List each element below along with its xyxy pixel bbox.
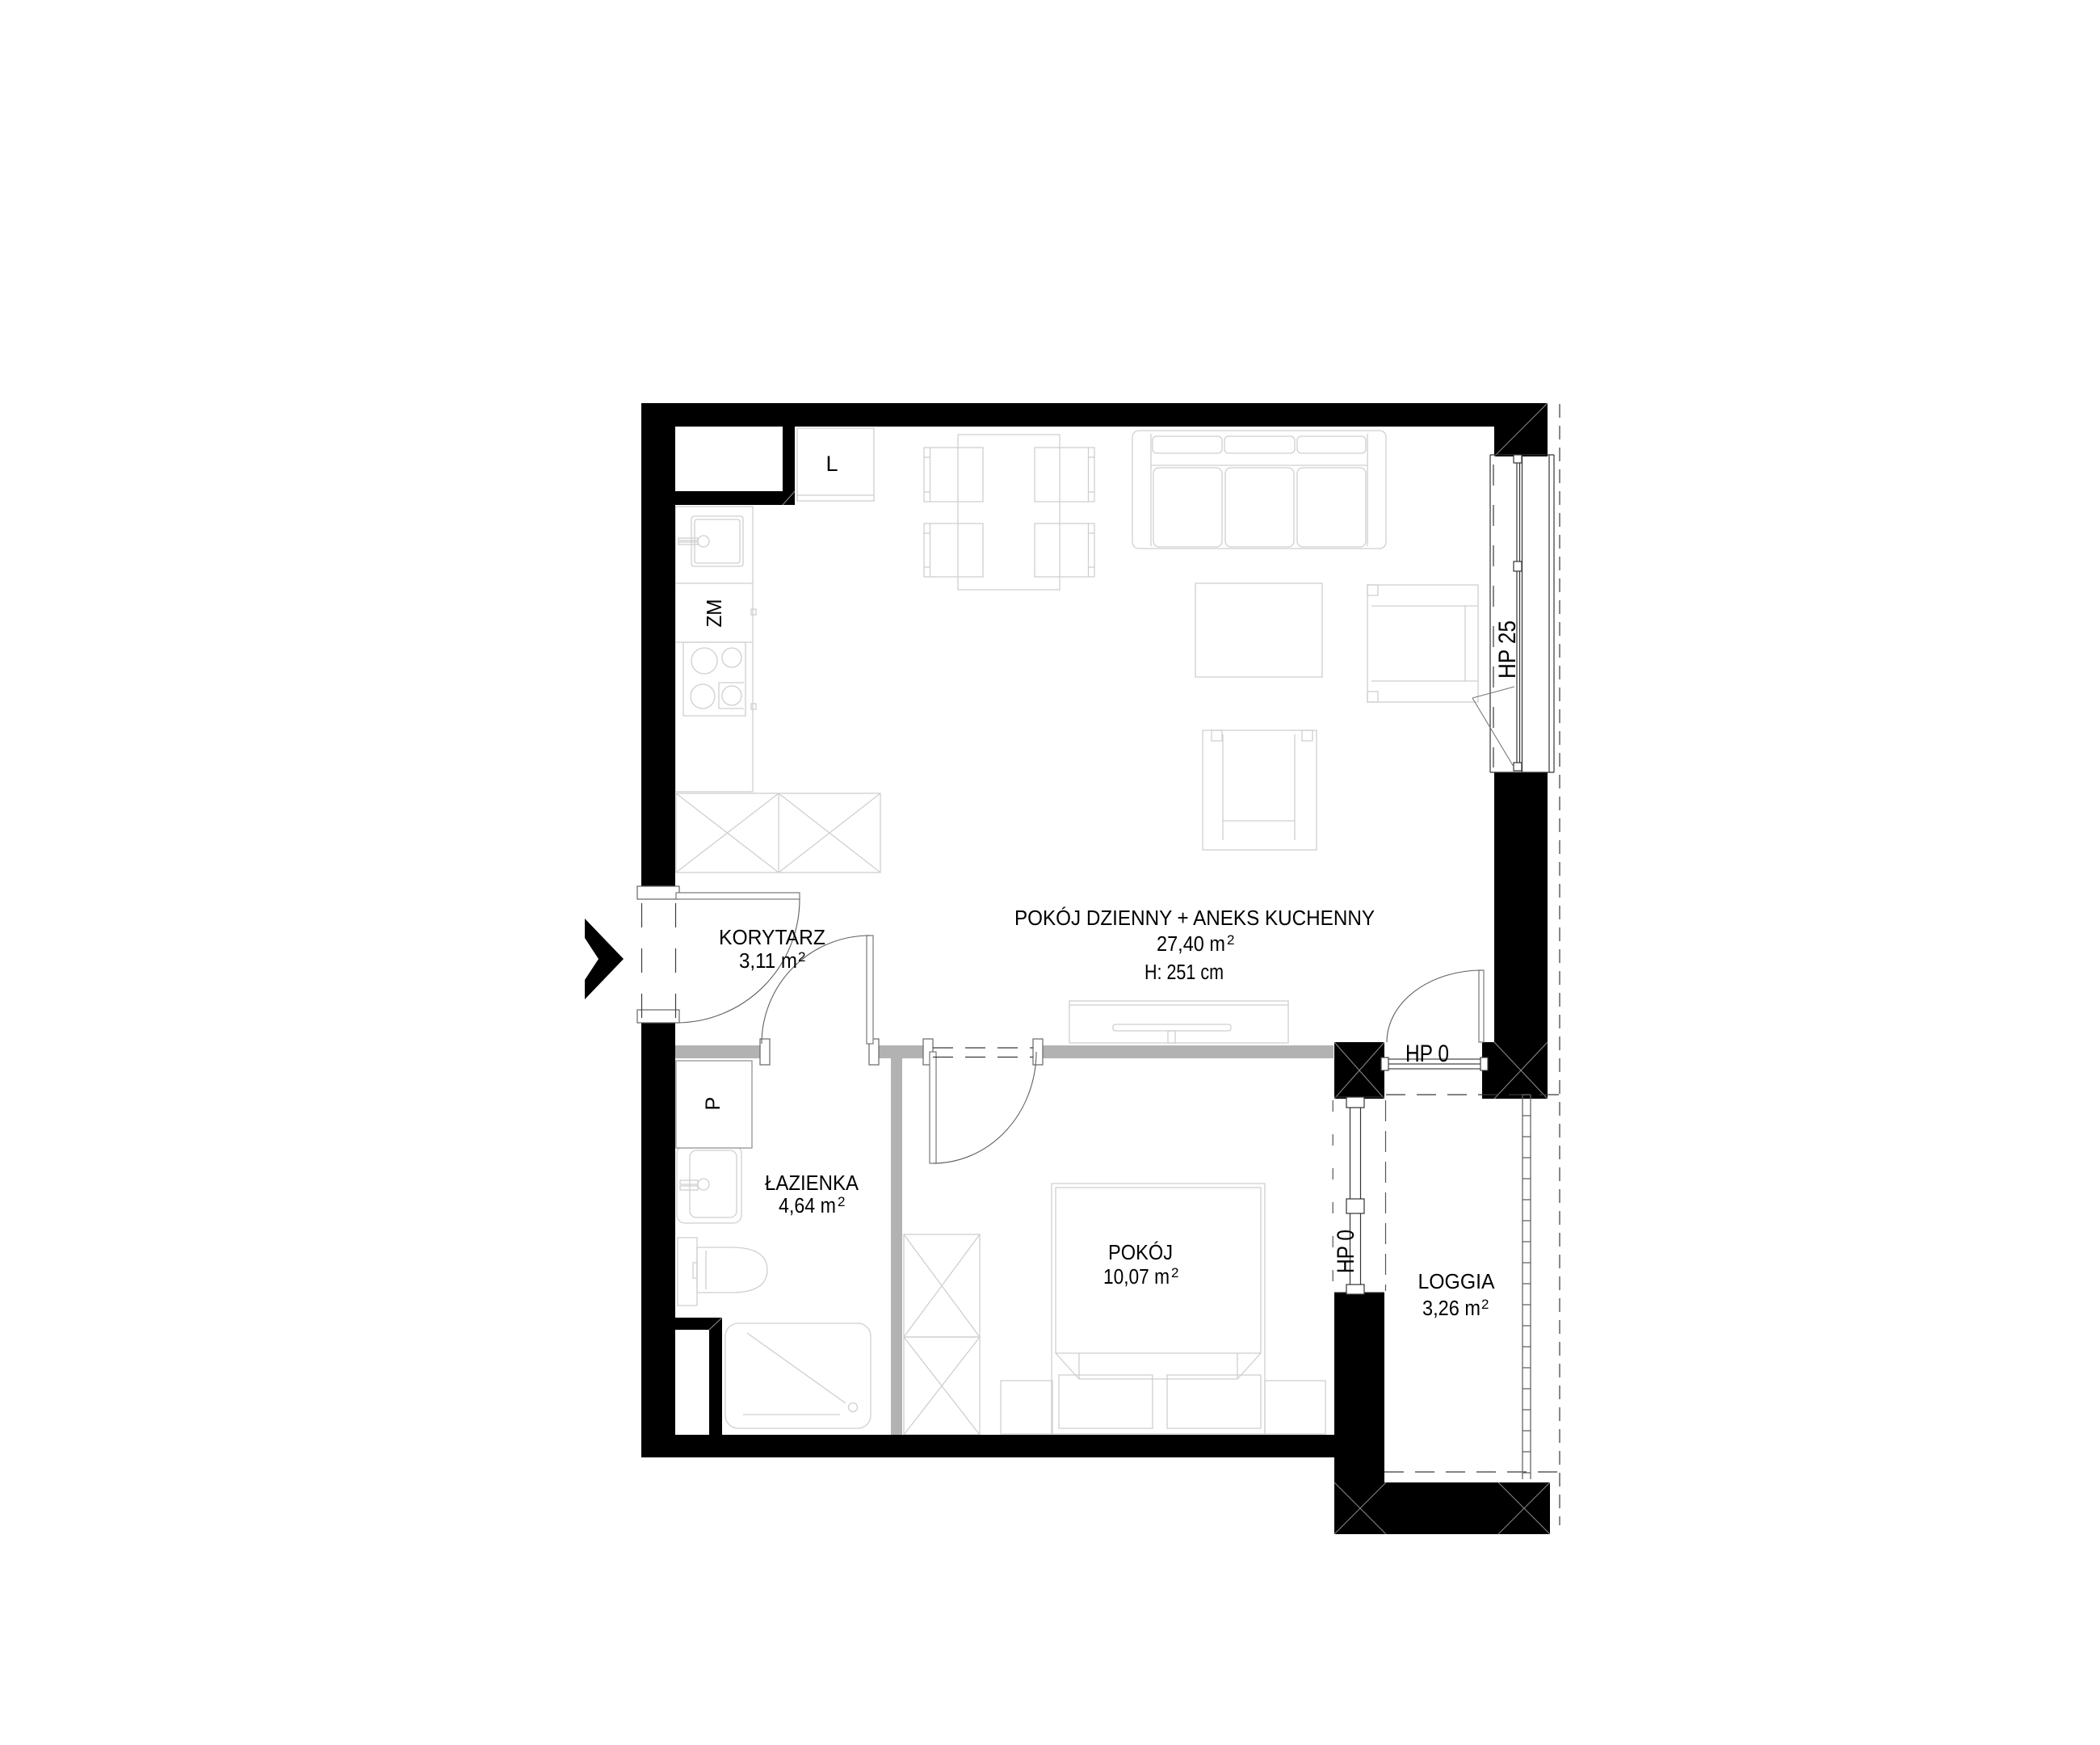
svg-text:2: 2 (838, 1194, 845, 1209)
svg-text:KORYTARZ: KORYTARZ (719, 927, 825, 949)
svg-text:4,64 m: 4,64 m (779, 1195, 836, 1217)
svg-text:POKÓJ DZIENNY + ANEKS KUCHENNY: POKÓJ DZIENNY + ANEKS KUCHENNY (1014, 906, 1375, 930)
svg-text:HP 0: HP 0 (1405, 1041, 1449, 1067)
svg-text:3,11 m: 3,11 m (739, 950, 797, 973)
svg-text:POKÓJ: POKÓJ (1108, 1241, 1173, 1264)
svg-text:ŁAZIENKA: ŁAZIENKA (765, 1172, 859, 1195)
svg-text:H: 251 cm: H: 251 cm (1144, 961, 1224, 984)
svg-text:2: 2 (1227, 932, 1234, 948)
svg-text:2: 2 (1481, 1297, 1489, 1312)
svg-text:HP 25: HP 25 (1494, 620, 1521, 679)
svg-text:HP 0: HP 0 (1333, 1230, 1359, 1273)
svg-text:2: 2 (798, 949, 805, 965)
svg-text:ZM: ZM (702, 599, 726, 628)
svg-text:10,07 m: 10,07 m (1103, 1266, 1170, 1289)
svg-text:3,26 m: 3,26 m (1422, 1297, 1480, 1320)
svg-text:L: L (825, 452, 838, 476)
svg-text:27,40 m: 27,40 m (1157, 933, 1225, 956)
svg-text:LOGGIA: LOGGIA (1418, 1271, 1495, 1293)
svg-text:2: 2 (1171, 1265, 1178, 1280)
svg-text:P: P (702, 1097, 724, 1111)
